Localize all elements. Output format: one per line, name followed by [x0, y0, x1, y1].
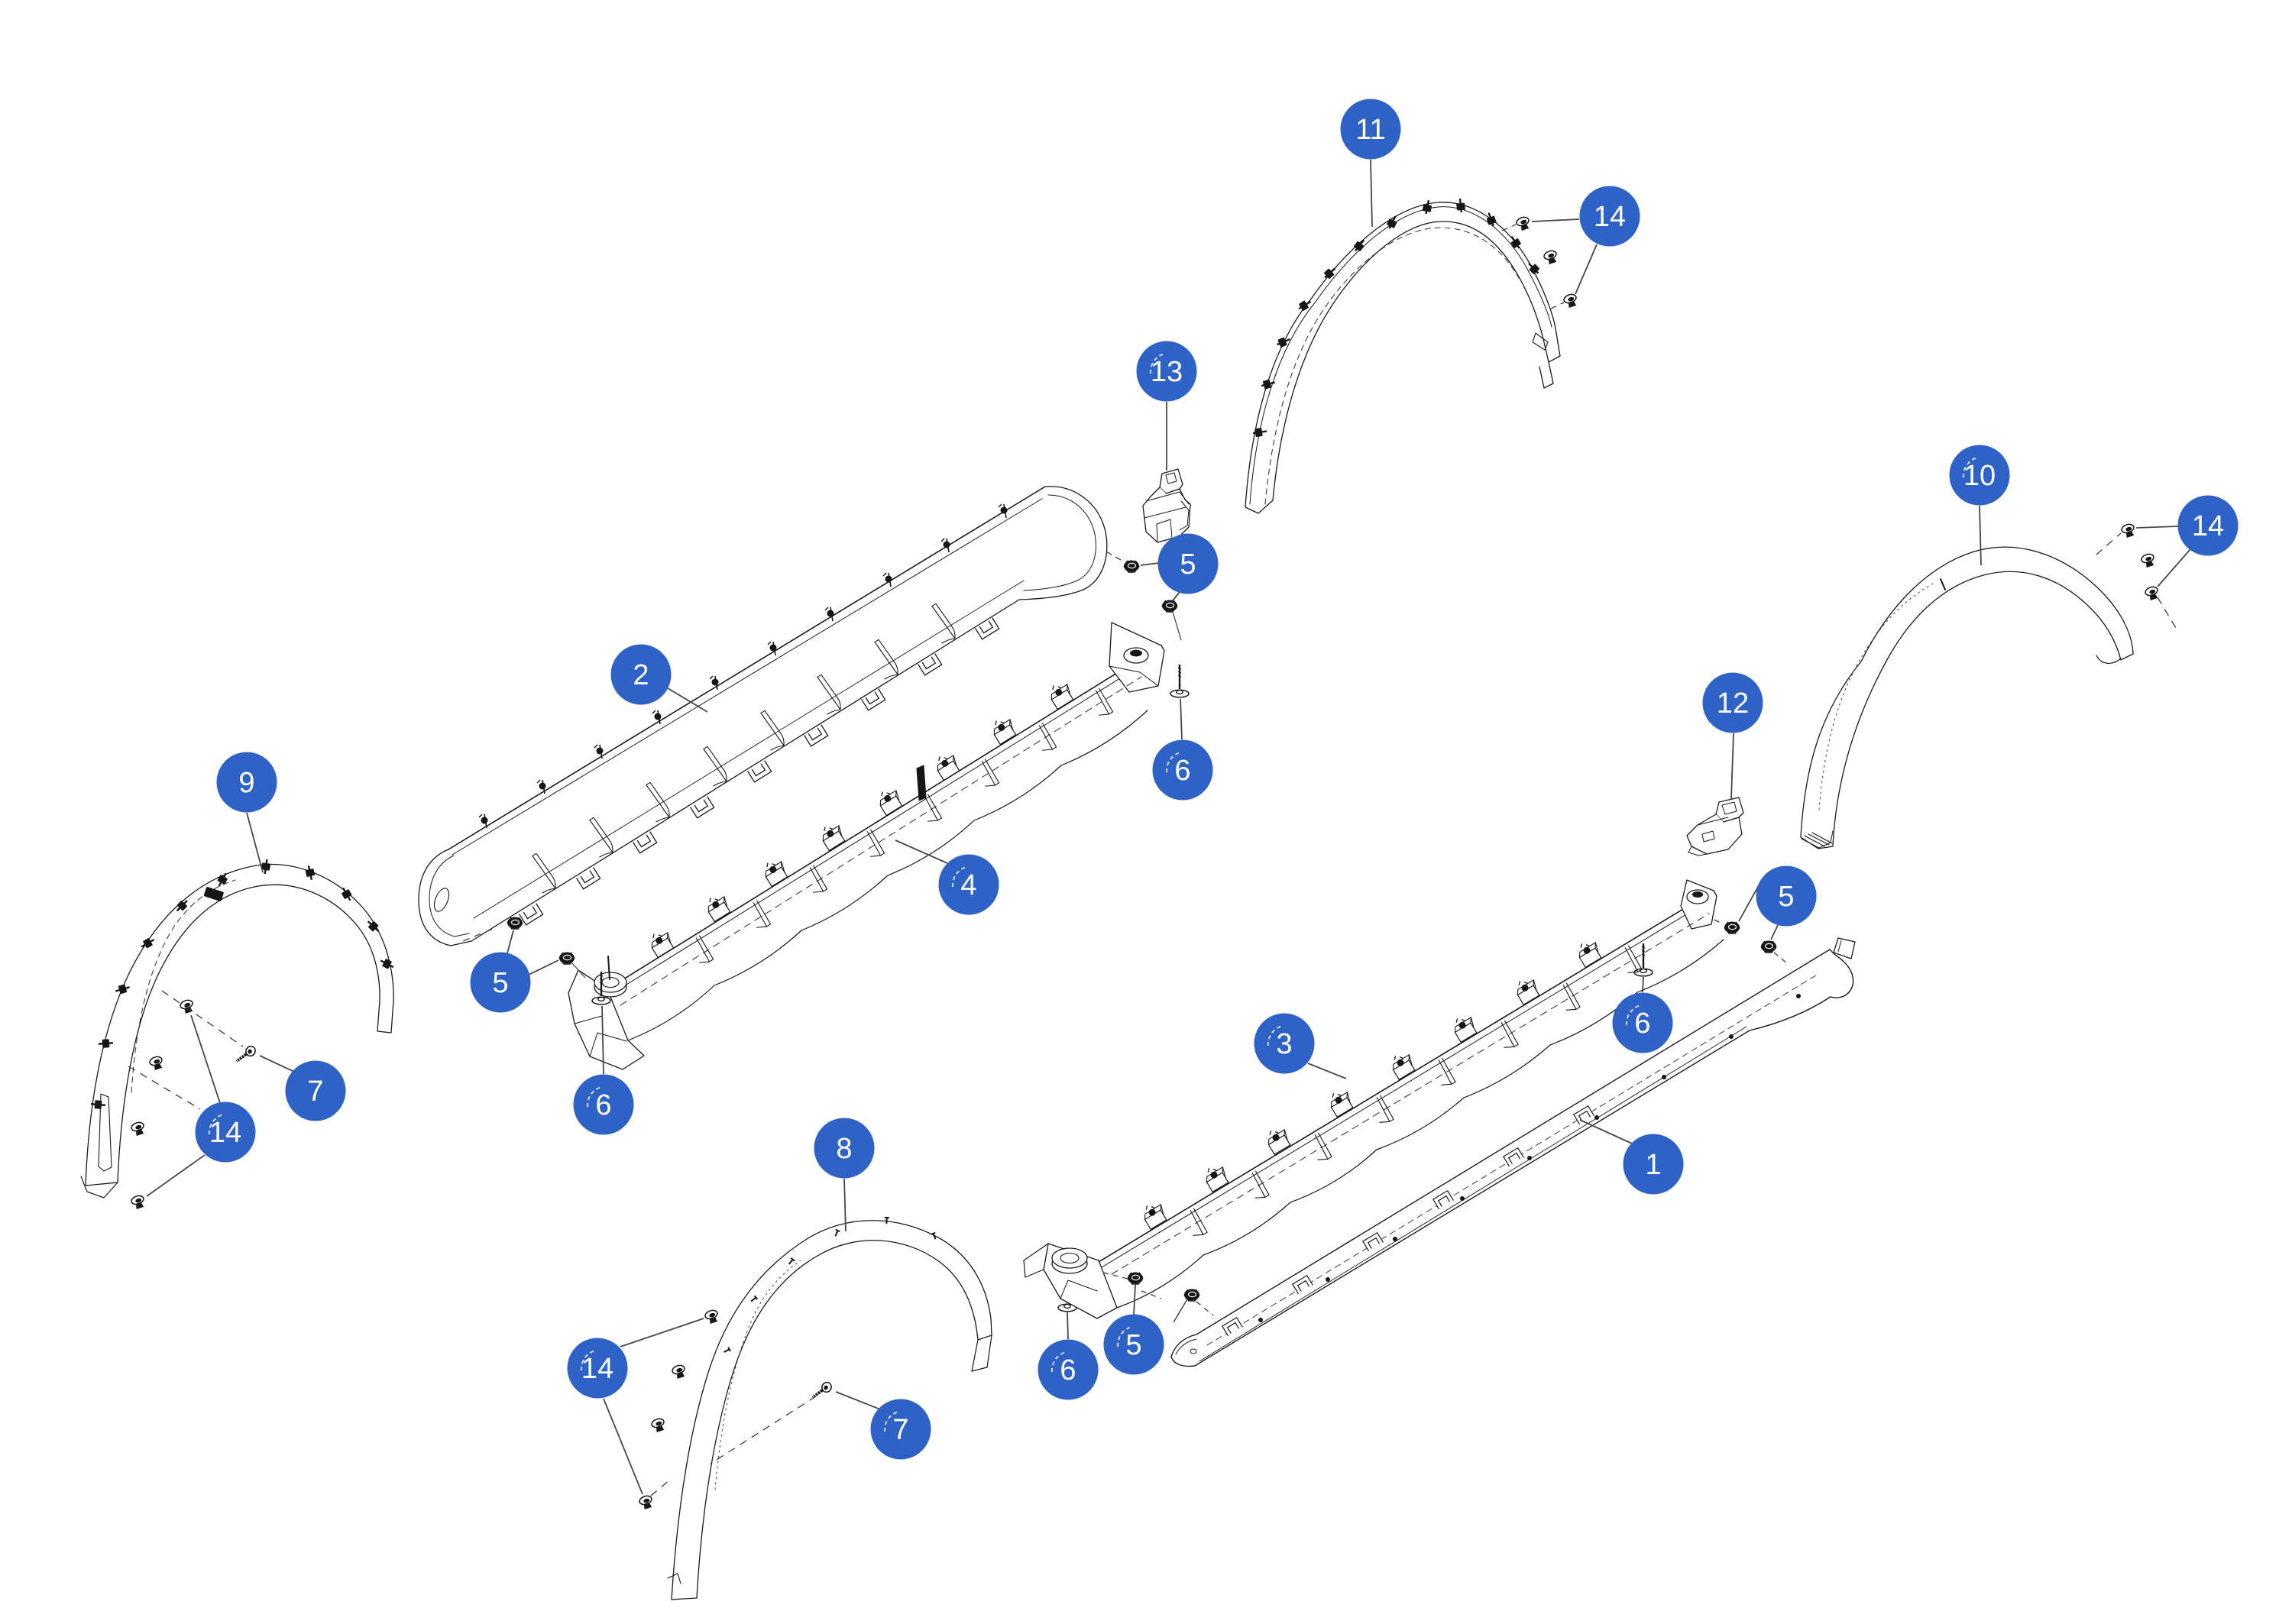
svg-text:12: 12	[1717, 687, 1749, 720]
svg-text:14: 14	[581, 1353, 613, 1385]
svg-text:9: 9	[238, 767, 254, 799]
svg-text:7: 7	[892, 1414, 908, 1446]
svg-text:6: 6	[1060, 1354, 1076, 1386]
svg-text:11: 11	[1355, 114, 1385, 146]
svg-text:1: 1	[1645, 1149, 1661, 1181]
svg-text:8: 8	[836, 1133, 852, 1165]
svg-text:3: 3	[1276, 1028, 1292, 1060]
svg-text:4: 4	[960, 869, 976, 901]
svg-text:5: 5	[1180, 548, 1196, 581]
svg-text:6: 6	[1174, 755, 1190, 787]
svg-text:14: 14	[1594, 201, 1626, 233]
svg-text:13: 13	[1151, 356, 1183, 388]
svg-text:10: 10	[1963, 460, 1996, 492]
svg-text:6: 6	[595, 1089, 611, 1121]
svg-text:14: 14	[209, 1117, 241, 1149]
svg-text:6: 6	[1634, 1008, 1650, 1040]
svg-text:14: 14	[2192, 510, 2224, 542]
svg-text:5: 5	[1125, 1329, 1141, 1361]
svg-text:5: 5	[492, 967, 508, 999]
svg-text:2: 2	[633, 659, 649, 691]
svg-text:5: 5	[1778, 881, 1794, 913]
svg-text:7: 7	[307, 1076, 323, 1108]
